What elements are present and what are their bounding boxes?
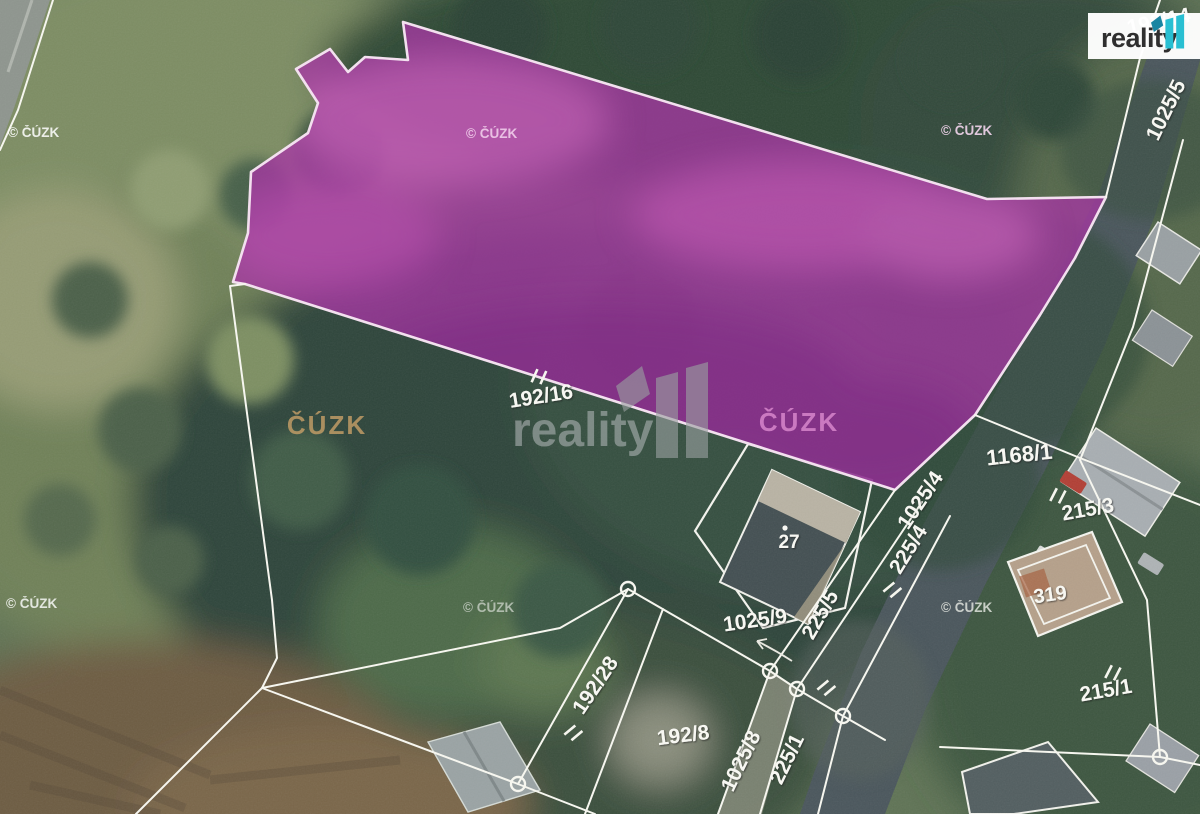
cuzk-copyright-top-left: © ČÚZK <box>8 125 59 140</box>
cuzk-watermark-green: ČÚZK <box>287 410 367 440</box>
cuzk-copyright-bottom-right: © ČÚZK <box>941 600 992 615</box>
reality-logo-badge: reality <box>1088 13 1200 59</box>
cadastral-map[interactable]: 192/14 1025/5 192/16 1168/1 1025/4 225/4… <box>0 0 1200 814</box>
cuzk-watermark-purple: ČÚZK <box>759 407 839 437</box>
building-label-27: 27 <box>778 532 799 553</box>
building-27-centroid-dot <box>782 525 787 530</box>
reality-watermark-text: reality <box>512 404 654 457</box>
cuzk-copyright-bottom-center: © ČÚZK <box>463 600 514 615</box>
cadastral-map-viewport[interactable]: 192/14 1025/5 192/16 1168/1 1025/4 225/4… <box>0 0 1200 814</box>
parcel-label-319: 319 <box>1032 582 1068 608</box>
cuzk-copyright-top-right: © ČÚZK <box>941 123 992 138</box>
cuzk-copyright-top-center: © ČÚZK <box>466 126 517 141</box>
cuzk-copyright-bottom-left: © ČÚZK <box>6 596 57 611</box>
